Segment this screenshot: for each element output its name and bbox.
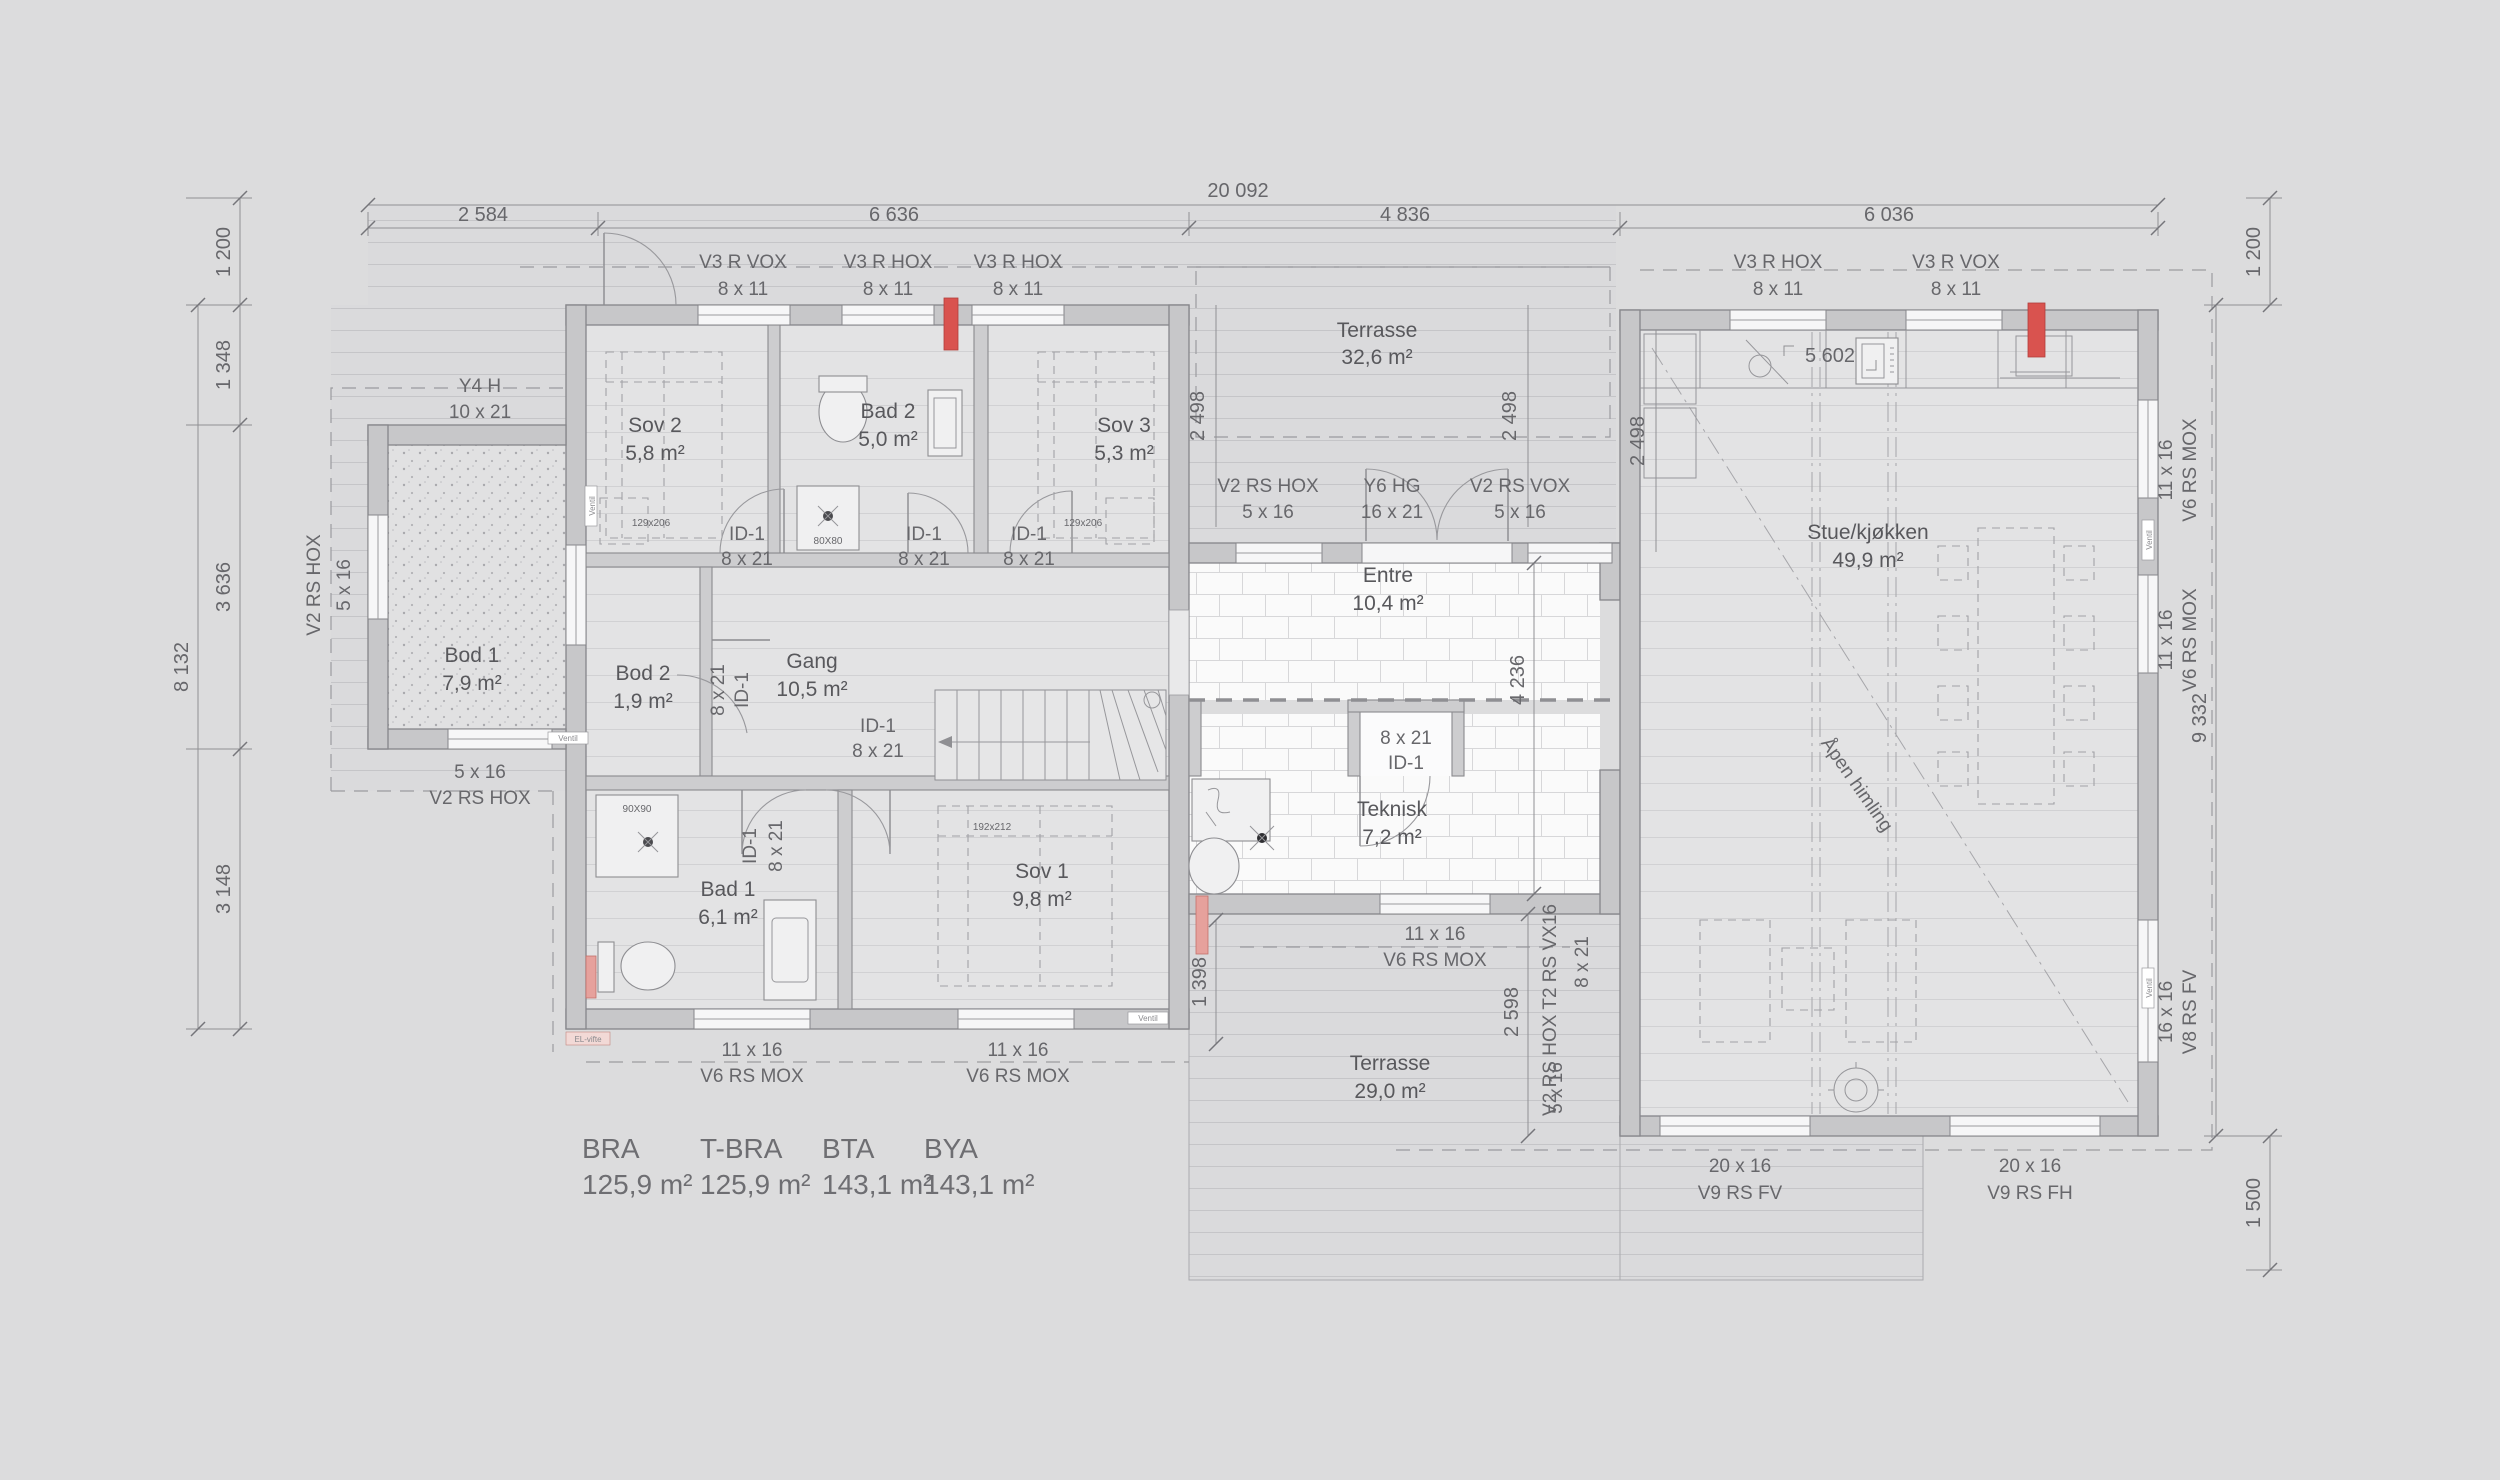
dim-seg4: 6 036	[1864, 204, 1914, 226]
room-bad1-area: 6,1 m²	[698, 906, 758, 929]
label-rr2-type: V6 RS MOX	[2180, 588, 2201, 692]
room-stue-name: Stue/kjøkken	[1807, 521, 1928, 544]
label-rr3-size: 16 x 16	[2156, 981, 2177, 1043]
label-bl2-size: 11 x 16	[988, 1040, 1049, 1061]
toilet-tank-bad2	[819, 376, 867, 392]
floor-plan-page: 20 092 2 584 6 636 4 836 6 036 1 200 1 3…	[0, 0, 2500, 1480]
dim-4236: 4 236	[1507, 655, 1529, 705]
label-shower-bad2: 80X80	[814, 536, 843, 547]
pipe-teknisk	[1196, 896, 1208, 954]
label-id-closet-2: ID-1	[1388, 753, 1424, 774]
dim-r1500: 1 500	[2243, 1178, 2265, 1228]
ventil-chip-1: Ventil	[588, 496, 597, 516]
room-sov1-area: 9,8 m²	[1012, 888, 1072, 911]
room-stue-area: 49,9 m²	[1832, 549, 1903, 572]
dim-r9332: 9 332	[2189, 693, 2211, 743]
label-ax1-type: V2 RS HOX	[304, 534, 325, 636]
label-bm-type: V6 RS MOX	[1383, 950, 1487, 971]
label-t3-size: 8 x 11	[993, 279, 1043, 300]
ventil-chip-5: Ventil	[558, 734, 578, 743]
toilet-bad1	[621, 942, 675, 990]
room-teknisk-name: Teknisk	[1357, 798, 1428, 821]
window-entre-right	[1528, 543, 1612, 563]
label-m2-type: Y6 HG	[1363, 476, 1420, 497]
label-bb2-type: V9 RS FH	[1987, 1183, 2073, 1204]
room-sov1-name: Sov 1	[1015, 860, 1069, 883]
dim-2498-a: 2 498	[1187, 391, 1209, 441]
label-ax1-size: 5 x 16	[334, 559, 355, 611]
dim-seg1: 2 584	[458, 204, 508, 226]
room-terrasse-top-area: 32,6 m²	[1341, 346, 1412, 369]
hall-floor-left	[1201, 714, 1348, 776]
dim-l8132: 8 132	[171, 642, 193, 692]
area-header-bya: BYA	[924, 1133, 978, 1164]
label-id-bad1-1: ID-1	[740, 828, 761, 864]
room-bod1-area: 7,9 m²	[442, 672, 502, 695]
label-y4h-size: 10 x 21	[449, 402, 511, 423]
label-rt1-size: 8 x 11	[1753, 279, 1803, 300]
dim-r1200: 1 200	[2243, 227, 2265, 277]
window-wing-left	[566, 545, 586, 645]
dim-2598: 2 598	[1501, 987, 1523, 1037]
label-t1-type: V3 R VOX	[699, 252, 787, 273]
label-y4h-type: Y4 H	[459, 376, 501, 397]
ventil-chip-3: Ventil	[2145, 978, 2154, 998]
label-t1-size: 8 x 11	[718, 279, 768, 300]
label-t2-type: V3 R HOX	[844, 252, 933, 273]
label-bed-sov1: 192x212	[973, 822, 1012, 833]
room-sov2-area: 5,8 m²	[625, 442, 685, 465]
boiler-teknisk	[1189, 838, 1239, 894]
label-id-closet-1: 8 x 21	[1380, 728, 1432, 749]
label-bl1-size: 11 x 16	[722, 1040, 783, 1061]
label-m1-size: 5 x 16	[1242, 502, 1294, 523]
dim-l3636: 3 636	[213, 562, 235, 612]
label-id-a-2: 8 x 21	[721, 549, 773, 570]
window-sov1-bottom	[958, 1009, 1074, 1029]
label-ax2-size: 5 x 16	[454, 762, 506, 783]
label-rr1-type: V6 RS MOX	[2180, 418, 2201, 522]
window-bod1-left	[368, 515, 388, 619]
room-sov3-area: 5,3 m²	[1094, 442, 1154, 465]
opening-gang-entre	[1169, 610, 1189, 695]
toilet-tank-bad1	[598, 942, 614, 992]
area-summary: BRA T-BRA BTA BYA 125,9 m² 125,9 m² 143,…	[582, 1133, 1035, 1200]
window-bad1-bottom	[694, 1009, 810, 1029]
area-header-tbra: T-BRA	[700, 1133, 783, 1164]
label-id-gang-1: ID-1	[860, 716, 896, 737]
label-m3-type: V2 RS VOX	[1470, 476, 1571, 497]
el-vifte-unit	[586, 956, 596, 998]
room-bod2-name: Bod 2	[616, 662, 671, 685]
label-bl1-type: V6 RS MOX	[700, 1066, 804, 1087]
window-stue-top-2	[1906, 310, 2002, 330]
label-id-bad1-2: 8 x 21	[766, 820, 787, 872]
el-vifte-chip: EL-vifte	[566, 1032, 610, 1045]
dim-l3148: 3 148	[213, 864, 235, 914]
label-m1-type: V2 RS HOX	[1217, 476, 1319, 497]
area-value-bya: 143,1 m²	[924, 1169, 1035, 1200]
window-stue-right-1	[2138, 400, 2158, 498]
area-value-tbra: 125,9 m²	[700, 1169, 811, 1200]
dim-seg2: 6 636	[869, 204, 919, 226]
label-bb2-size: 20 x 16	[1999, 1156, 2061, 1177]
label-shower-bad1: 90X90	[623, 804, 652, 815]
dim-2498-c: 2 498	[1627, 416, 1649, 466]
window-teknisk-bottom	[1380, 894, 1490, 914]
window-bad2	[842, 305, 934, 325]
ventil-chip-4: Ventil	[1138, 1014, 1158, 1023]
area-value-bta: 143,1 m²	[822, 1169, 933, 1200]
cabinet-bad2	[928, 390, 962, 456]
window-entre-left	[1236, 543, 1322, 563]
dim-overall: 20 092	[1207, 180, 1268, 202]
room-teknisk-area: 7,2 m²	[1362, 826, 1422, 849]
label-rt2-size: 8 x 11	[1931, 279, 1981, 300]
room-terrasse-bottom-name: Terrasse	[1350, 1052, 1431, 1075]
label-id-c-2: 8 x 21	[1003, 549, 1055, 570]
dim-5602: 5 602	[1805, 345, 1855, 367]
room-bad2-name: Bad 2	[861, 400, 916, 423]
label-rt2-type: V3 R VOX	[1912, 252, 2000, 273]
label-rr3-type: V8 RS FV	[2180, 969, 2201, 1054]
vent-stack-bad2	[944, 298, 958, 350]
area-header-bta: BTA	[822, 1133, 875, 1164]
dim-1398: 1 398	[1189, 957, 1211, 1007]
room-bod1-name: Bod 1	[445, 644, 500, 667]
ventil-chip-2: Ventil	[2145, 530, 2154, 550]
label-m3-size: 5 x 16	[1494, 502, 1546, 523]
label-tmix-size2: 5 x 16	[1546, 1062, 1567, 1114]
label-id-bod2-2: ID-1	[732, 672, 753, 708]
room-entre-name: Entre	[1363, 564, 1413, 587]
room-bod2-area: 1,9 m²	[613, 690, 673, 713]
dim-2498-b: 2 498	[1499, 391, 1521, 441]
window-stue-top-1	[1730, 310, 1826, 330]
label-bed-sov2: 129x206	[632, 518, 671, 529]
label-id-bod2-1: 8 x 21	[708, 664, 729, 716]
label-t3-type: V3 R HOX	[974, 252, 1063, 273]
label-bl2-type: V6 RS MOX	[966, 1066, 1070, 1087]
room-bad2-area: 5,0 m²	[858, 428, 918, 451]
dim-l1348: 1 348	[213, 340, 235, 390]
floor-plan-drawing: 20 092 2 584 6 636 4 836 6 036 1 200 1 3…	[0, 0, 2500, 1480]
label-bb1-type: V9 RS FV	[1698, 1183, 1783, 1204]
window-bod1-bottom	[448, 729, 552, 749]
el-vifte-label: EL-vifte	[574, 1035, 602, 1044]
room-sov3-name: Sov 3	[1097, 414, 1151, 437]
hall-floor-right	[1464, 714, 1600, 776]
room-gang-area: 10,5 m²	[776, 678, 847, 701]
label-tmix-size1: 8 x 21	[1572, 936, 1593, 988]
dim-seg3: 4 836	[1380, 204, 1430, 226]
label-rr1-size: 11 x 16	[2156, 440, 2177, 501]
label-ax2-type: V2 RS HOX	[429, 788, 531, 809]
label-id-b-2: 8 x 21	[898, 549, 950, 570]
window-sov3	[972, 305, 1064, 325]
label-rr2-size: 11 x 16	[2156, 610, 2177, 671]
label-m2-size: 16 x 21	[1361, 502, 1423, 523]
label-rt1-type: V3 R HOX	[1734, 252, 1823, 273]
room-terrasse-top-name: Terrasse	[1337, 319, 1418, 342]
terrace-bottom-right-surface	[1620, 1136, 1923, 1280]
label-bm-size: 11 x 16	[1405, 924, 1466, 945]
label-bb1-size: 20 x 16	[1709, 1156, 1771, 1177]
door-stue-bottom-2	[1950, 1116, 2100, 1136]
room-gang-name: Gang	[786, 650, 837, 673]
bench-teknisk	[1192, 779, 1270, 841]
room-terrasse-bottom-area: 29,0 m²	[1354, 1080, 1425, 1103]
area-header-bra: BRA	[582, 1133, 640, 1164]
stairs	[935, 690, 1166, 780]
label-id-a-1: ID-1	[729, 524, 765, 545]
label-t2-size: 8 x 11	[863, 279, 913, 300]
label-id-gang-2: 8 x 21	[852, 741, 904, 762]
door-stue-bottom-1	[1660, 1116, 1810, 1136]
label-bed-sov3: 129x206	[1064, 518, 1103, 529]
dim-l1200: 1 200	[213, 227, 235, 277]
room-sov2-name: Sov 2	[628, 414, 682, 437]
room-bad1-name: Bad 1	[701, 878, 756, 901]
room-entre-area: 10,4 m²	[1352, 592, 1423, 615]
window-stue-right-2	[2138, 575, 2158, 673]
window-sov2	[698, 305, 790, 325]
label-id-b-1: ID-1	[906, 524, 942, 545]
area-value-bra: 125,9 m²	[582, 1169, 693, 1200]
label-id-c-1: ID-1	[1011, 524, 1047, 545]
chimney	[2028, 303, 2045, 357]
